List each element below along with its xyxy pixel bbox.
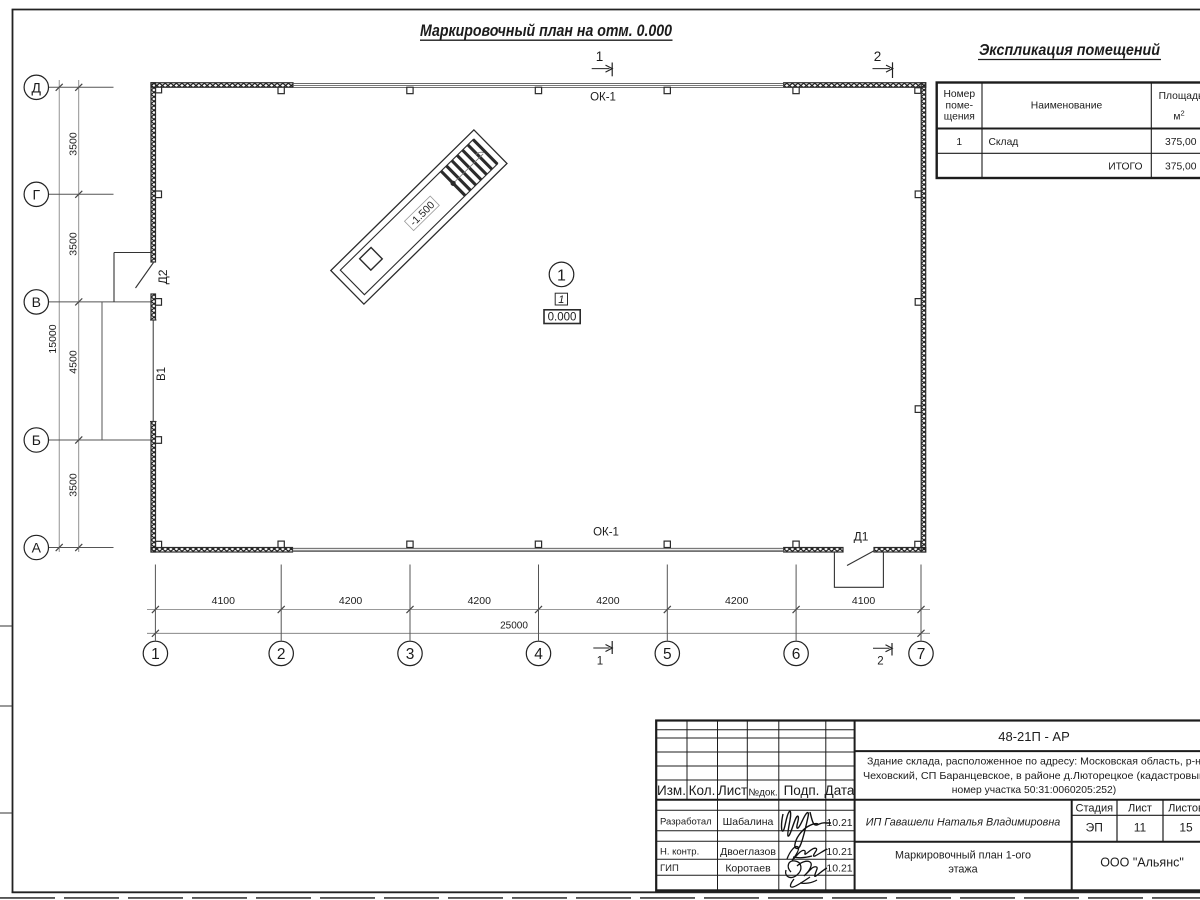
svg-text:Д1: Д1: [854, 530, 869, 544]
svg-text:ИП Гавашели Наталья Владимиров: ИП Гавашели Наталья Владимировна: [866, 817, 1061, 829]
svg-text:А: А: [32, 540, 42, 556]
svg-text:Шабалина: Шабалина: [723, 816, 774, 828]
svg-text:4200: 4200: [596, 595, 620, 607]
svg-text:ОК-1: ОК-1: [590, 92, 616, 104]
svg-text:3500: 3500: [68, 232, 80, 256]
svg-text:Чеховский, СП Баранцевское, в: Чеховский, СП Баранцевское, в районе д.Л…: [863, 771, 1200, 782]
svg-text:6: 6: [792, 646, 801, 663]
svg-text:Наименование: Наименование: [1031, 100, 1103, 111]
svg-text:В: В: [32, 294, 41, 310]
svg-text:3500: 3500: [68, 132, 80, 156]
svg-text:3: 3: [406, 646, 415, 663]
svg-text:Г: Г: [33, 186, 41, 202]
svg-text:25000: 25000: [500, 621, 528, 632]
svg-text:Номер: Номер: [943, 89, 975, 100]
svg-text:Лист: Лист: [718, 783, 747, 798]
svg-text:15: 15: [1179, 821, 1193, 835]
svg-text:4200: 4200: [725, 595, 749, 607]
svg-text:Разработал: Разработал: [660, 817, 712, 828]
svg-text:щения: щения: [944, 112, 975, 123]
svg-text:0.000: 0.000: [548, 312, 577, 324]
svg-text:4200: 4200: [339, 595, 363, 607]
svg-text:Коротаев: Коротаев: [725, 863, 771, 875]
svg-text:15000: 15000: [47, 324, 59, 353]
svg-text:Д2: Д2: [156, 269, 170, 284]
svg-text:4100: 4100: [212, 595, 236, 607]
svg-text:Д: Д: [32, 79, 42, 95]
svg-text:м2: м2: [1173, 109, 1184, 123]
svg-text:Площадь: Площадь: [1159, 91, 1200, 102]
svg-text:1: 1: [596, 49, 604, 64]
svg-text:Здание склада, расположенное п: Здание склада, расположенное по адресу: …: [867, 756, 1200, 768]
svg-text:Б: Б: [32, 432, 41, 448]
svg-text:1: 1: [597, 656, 603, 668]
svg-text:375,00: 375,00: [1165, 161, 1197, 172]
svg-text:№док.: №док.: [748, 788, 777, 799]
svg-text:Двоеглазов: Двоеглазов: [720, 846, 776, 858]
svg-text:2: 2: [874, 49, 882, 64]
svg-text:В1: В1: [156, 367, 168, 381]
svg-text:4100: 4100: [852, 595, 876, 607]
svg-text:10.21: 10.21: [826, 846, 852, 858]
svg-text:3500: 3500: [68, 473, 80, 497]
svg-text:375,00: 375,00: [1165, 137, 1197, 148]
svg-text:ООО "Альянс": ООО "Альянс": [1100, 856, 1184, 870]
svg-text:Дата: Дата: [825, 783, 855, 798]
svg-text:2: 2: [877, 656, 883, 668]
svg-text:Листов: Листов: [1168, 803, 1200, 815]
svg-text:Склад: Склад: [989, 137, 1019, 148]
svg-text:48-21П - АР: 48-21П - АР: [998, 729, 1070, 744]
svg-text:2: 2: [277, 646, 286, 663]
svg-text:4200: 4200: [468, 595, 492, 607]
svg-text:1: 1: [557, 267, 566, 284]
svg-text:ОК-1: ОК-1: [593, 527, 619, 539]
svg-text:4: 4: [534, 646, 543, 663]
svg-text:1: 1: [956, 137, 962, 148]
svg-text:ЭП: ЭП: [1086, 821, 1103, 835]
svg-text:7: 7: [917, 646, 926, 663]
svg-text:номер участка 50:31:0060205:25: номер участка 50:31:0060205:252): [952, 785, 1116, 796]
svg-text:этажа: этажа: [948, 864, 977, 876]
svg-text:Экспликация помещений: Экспликация помещений: [979, 42, 1160, 59]
svg-text:Изм.: Изм.: [657, 783, 686, 798]
svg-text:ГИП: ГИП: [660, 863, 679, 874]
svg-text:Маркировочный план на отм. 0.0: Маркировочный план на отм. 0.000: [420, 22, 673, 40]
svg-text:11: 11: [1134, 821, 1147, 835]
svg-text:Лист: Лист: [1128, 803, 1152, 815]
svg-text:Подп.: Подп.: [784, 783, 820, 798]
svg-text:поме-: поме-: [946, 100, 974, 111]
svg-text:ИТОГО: ИТОГО: [1108, 161, 1142, 172]
svg-text:10.21: 10.21: [826, 863, 852, 875]
svg-text:Стадия: Стадия: [1076, 803, 1114, 815]
svg-text:1: 1: [151, 646, 160, 663]
svg-text:4500: 4500: [68, 350, 80, 374]
svg-text:Н. контр.: Н. контр.: [660, 847, 699, 858]
svg-text:Кол.: Кол.: [689, 783, 716, 798]
svg-text:1: 1: [558, 294, 564, 306]
svg-text:Маркировочный план 1-ого: Маркировочный план 1-ого: [895, 850, 1031, 862]
svg-text:5: 5: [663, 646, 672, 663]
